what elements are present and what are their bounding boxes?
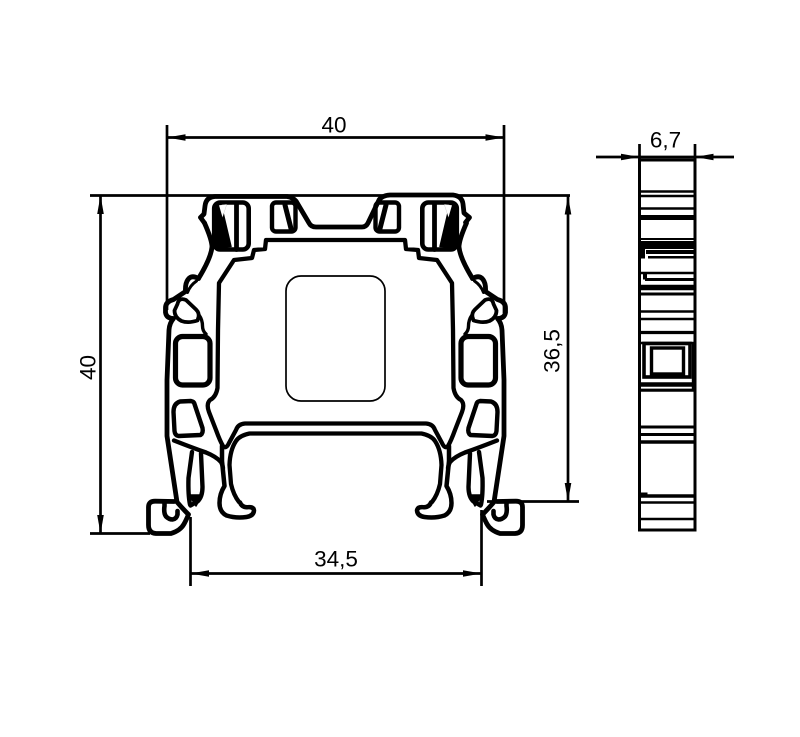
svg-text:34,5: 34,5 — [314, 547, 358, 572]
svg-text:40: 40 — [76, 355, 101, 380]
svg-text:36,5: 36,5 — [540, 329, 565, 373]
svg-text:6,7: 6,7 — [650, 128, 681, 153]
svg-text:40: 40 — [321, 113, 346, 138]
